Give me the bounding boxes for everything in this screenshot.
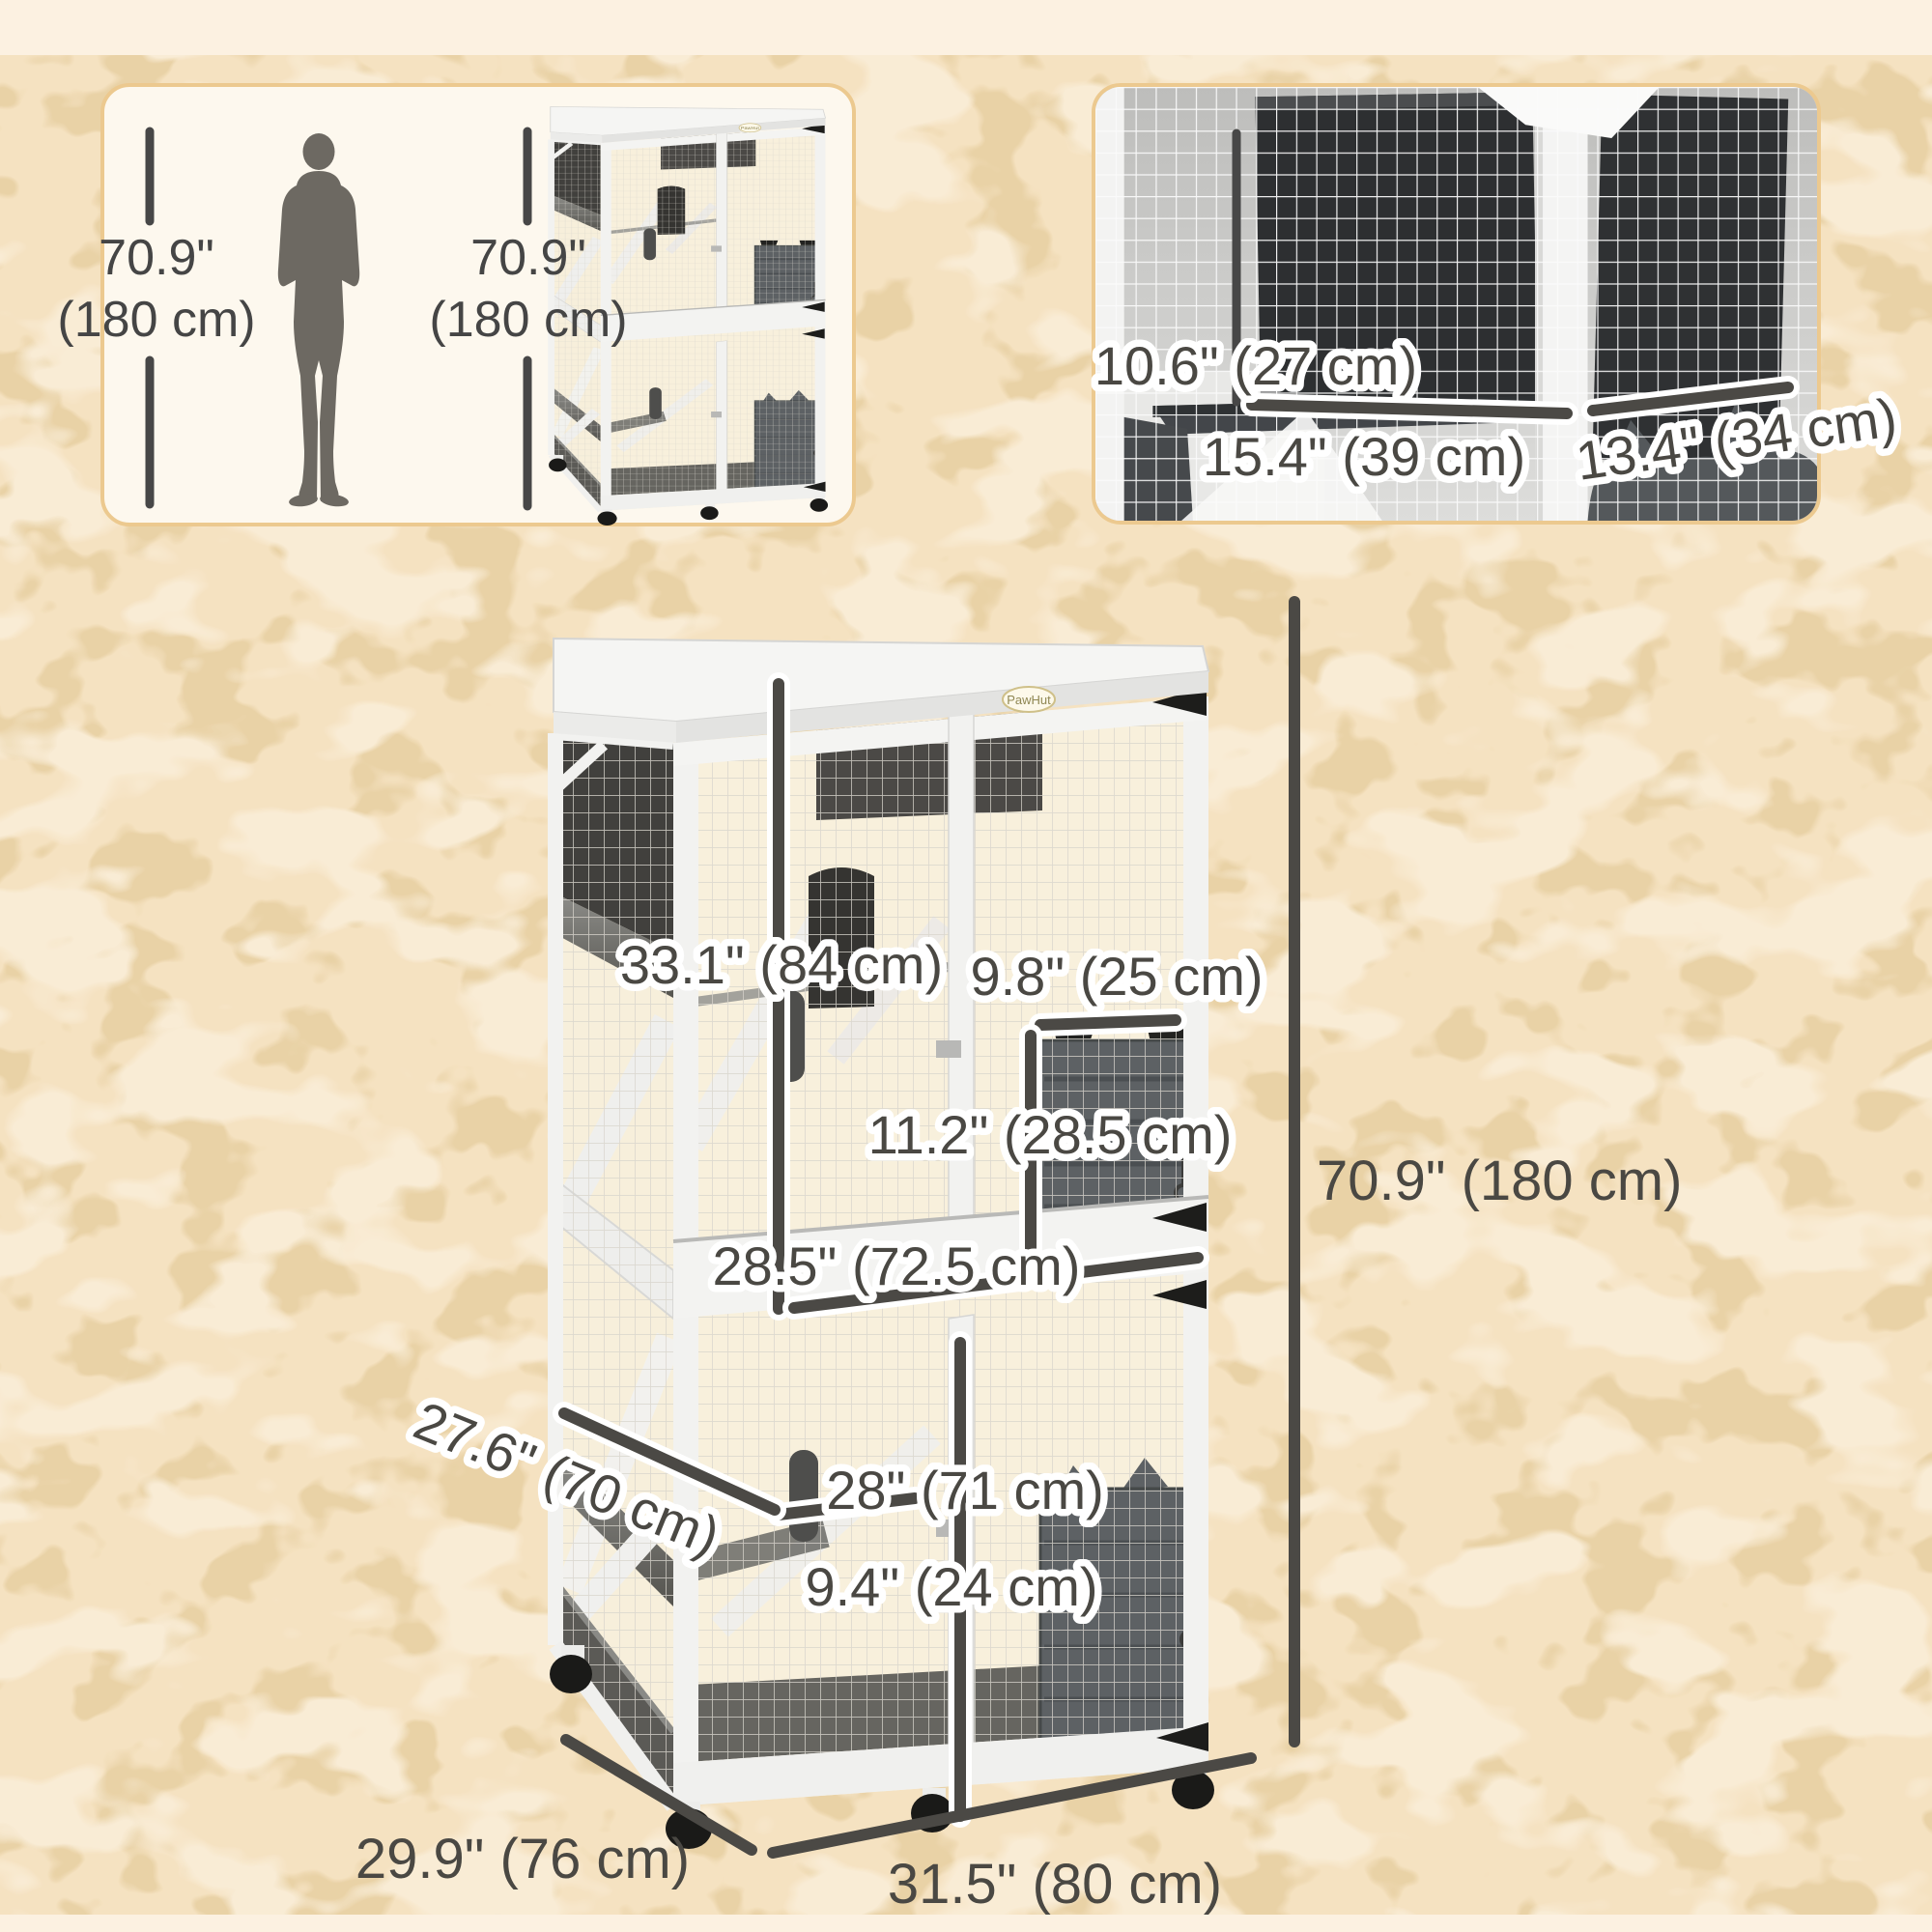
dimension-infographic: { "colors": { "background_texture": "#f5… (0, 0, 1932, 1932)
catio-interior-photo (1095, 87, 1817, 521)
size-reference-panel (100, 83, 856, 526)
detail-photo-panel (1092, 83, 1821, 525)
